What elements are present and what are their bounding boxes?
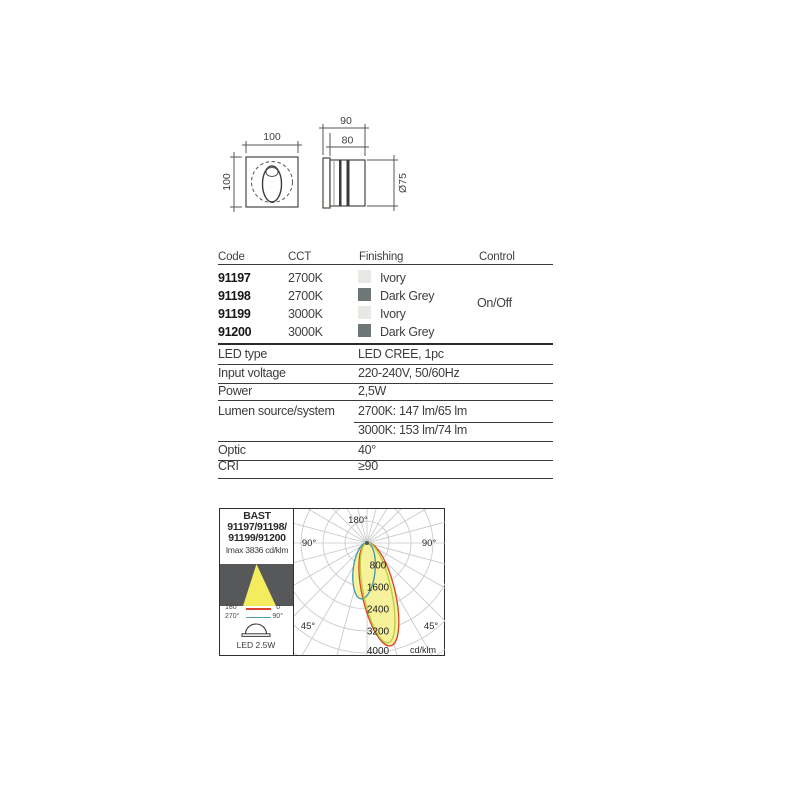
spec-rule [218, 441, 553, 442]
product-code: 91199 [218, 307, 251, 321]
spec-rule [218, 478, 553, 479]
spec-value: 2700K: 147 lm/65 lm [358, 404, 467, 418]
surface-mount-dome-icon [240, 620, 272, 638]
datasheet-page: 100 100 90 80 Ø75 Code CCT Finishing Con [0, 0, 800, 800]
chart-label: 800 [370, 561, 387, 572]
lamp-label: LED 2.5W [219, 640, 293, 650]
spec-rule [218, 460, 553, 461]
light-aperture [266, 168, 278, 177]
col-header-code: Code [218, 251, 245, 263]
product-code: 91198 [218, 289, 251, 303]
side-width-dim-label: 90 [340, 115, 352, 127]
chart-label: cd/klm [410, 645, 436, 655]
chart-label: 1600 [367, 583, 390, 594]
cct-value: 2700K [288, 289, 323, 303]
legend-left-angle: 180° [225, 604, 239, 612]
spec-value: 2,5W [358, 384, 386, 398]
finishing-swatch [358, 324, 371, 337]
photometry-imax: Imax 3836 cd/klm [220, 545, 294, 555]
finishing-name: Dark Grey [380, 289, 434, 303]
polar-intensity-chart: 8001600240032004000180°90°90°45°45°cd/kl… [294, 509, 445, 655]
front-height-dim-label: 100 [221, 173, 233, 191]
spec-value: 220-240V, 50/60Hz [358, 366, 459, 380]
spec-value: ≥90 [358, 459, 378, 473]
spec-rule [218, 400, 553, 401]
finishing-name: Dark Grey [380, 325, 434, 339]
beam-cone-panel [220, 564, 293, 606]
photometry-codes-2: 91199/91200 [220, 532, 294, 544]
front-view-drawing [246, 157, 298, 207]
col-header-control: Control [479, 251, 515, 263]
cct-value: 3000K [288, 325, 323, 339]
col-header-cct: CCT [288, 251, 311, 263]
table-bottom-rule [218, 343, 553, 345]
spec-label: Lumen source/system [218, 404, 335, 418]
side-inner-width-dim-label: 80 [342, 135, 354, 147]
legend-right-angle: 0° [266, 604, 283, 612]
chart-label: 90° [422, 538, 437, 549]
finishing-name: Ivory [380, 271, 406, 285]
finishing-swatch [358, 288, 371, 301]
legend-left-angle: 270° [225, 613, 239, 621]
control-value: On/Off [477, 296, 512, 310]
egg-recess-outline [263, 166, 282, 202]
cct-value: 3000K [288, 307, 323, 321]
cct-value: 2700K [288, 271, 323, 285]
technical-drawings: 100 100 90 80 Ø75 [212, 105, 452, 230]
side-view-drawing [323, 158, 365, 208]
beam-cone-icon [220, 564, 293, 606]
product-code: 91197 [218, 271, 251, 285]
chart-label: 2400 [367, 605, 390, 616]
chart-label: 4000 [367, 646, 390, 655]
chart-label: 180° [348, 515, 368, 526]
col-header-finishing: Finishing [359, 251, 403, 263]
spec-label: Optic [218, 443, 246, 457]
chart-label: 3200 [367, 627, 390, 638]
spec-value: 3000K: 153 lm/74 lm [358, 423, 467, 437]
side-diameter-dim-label: Ø75 [397, 173, 409, 193]
spec-label: CRI [218, 459, 239, 473]
spec-value: LED CREE, 1pc [358, 347, 444, 361]
finishing-swatch [358, 270, 371, 283]
table-header-rule [218, 264, 553, 265]
spec-rule [218, 364, 553, 365]
product-code: 91200 [218, 325, 251, 339]
spec-label: Input voltage [218, 366, 286, 380]
chart-label: 45° [301, 621, 316, 632]
spec-label: Power [218, 384, 252, 398]
finishing-swatch [358, 306, 371, 319]
spec-label: LED type [218, 347, 267, 361]
chart-label: 90° [302, 538, 317, 549]
front-width-dim-label: 100 [263, 131, 281, 143]
spec-value: 40° [358, 443, 376, 457]
finishing-name: Ivory [380, 307, 406, 321]
chart-label: 45° [424, 621, 439, 632]
